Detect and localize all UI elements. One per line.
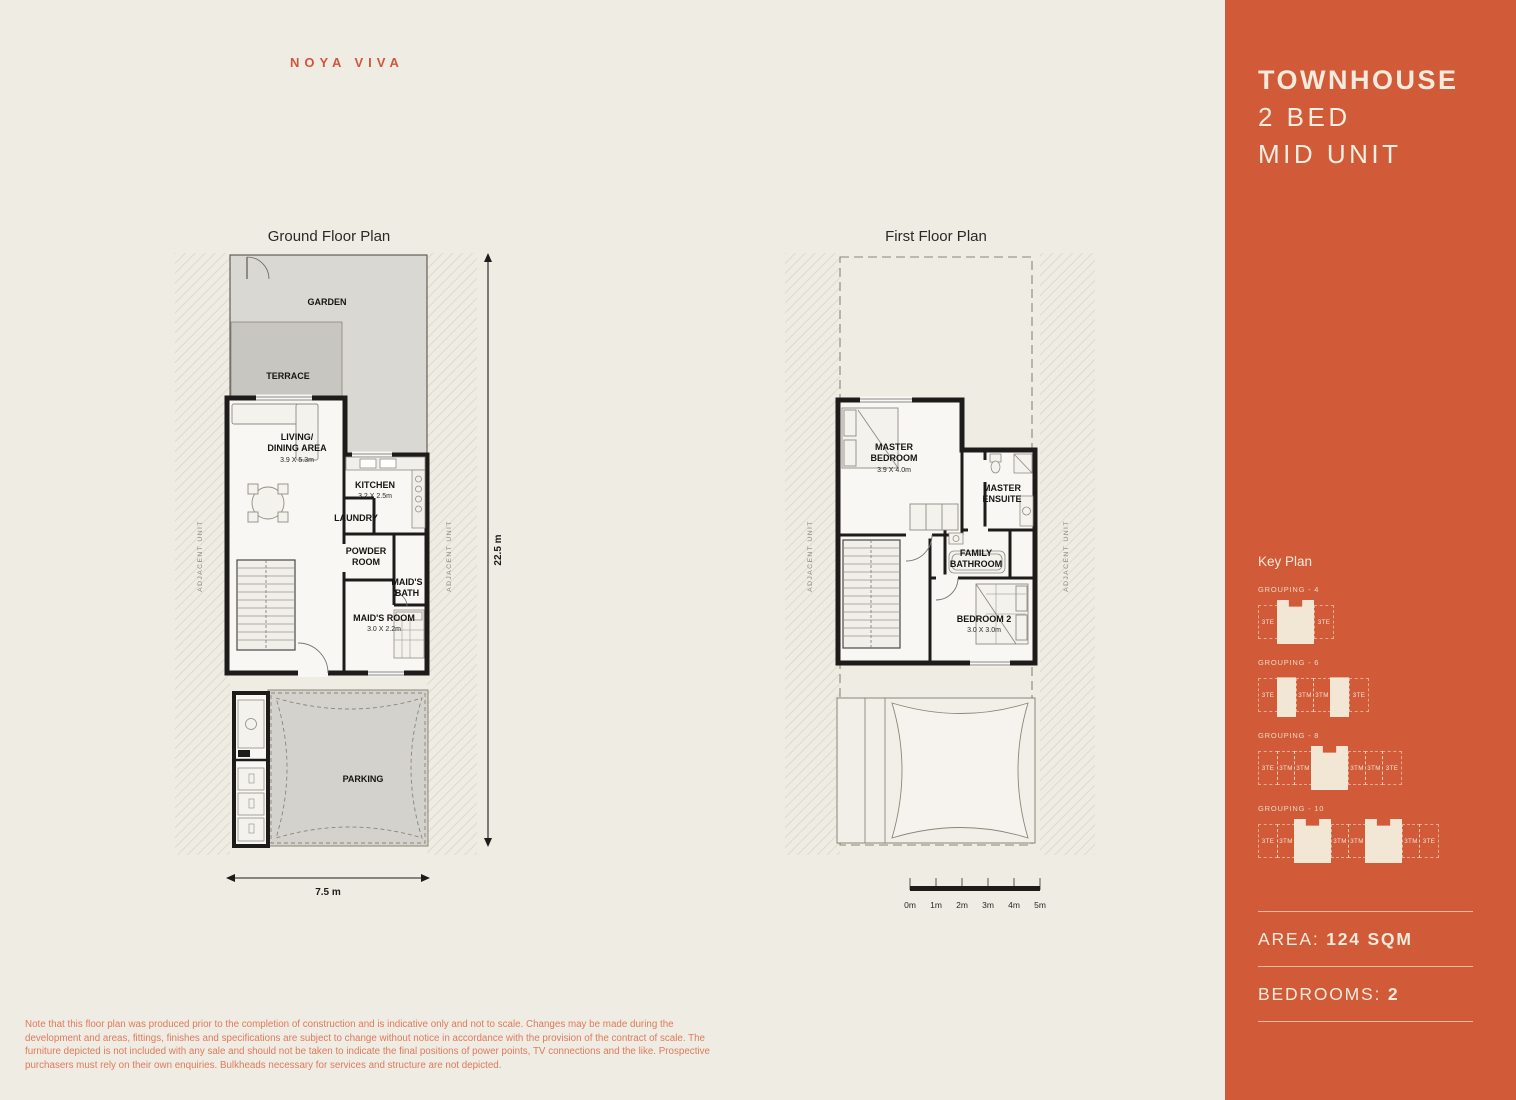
- bedrooms-row: BEDROOMS: 2: [1258, 967, 1473, 1021]
- brochure-page: NOYA VIVA Ground Floor Plan First Floor …: [0, 0, 1516, 1100]
- unit-cell: 3TM: [1296, 678, 1314, 712]
- svg-text:BATHROOM: BATHROOM: [950, 559, 1002, 569]
- svg-text:3.0 X 2.2m: 3.0 X 2.2m: [367, 626, 401, 633]
- highlighted-unit: [1365, 819, 1402, 863]
- spec-summary: AREA: 124 SQM BEDROOMS: 2: [1258, 911, 1473, 1022]
- svg-text:MAID'S: MAID'S: [391, 577, 422, 587]
- svg-text:3.9 X 5.3m: 3.9 X 5.3m: [280, 457, 314, 464]
- svg-text:ROOM: ROOM: [352, 557, 380, 567]
- ground-floor-title: Ground Floor Plan: [144, 228, 514, 245]
- grouping-label: GROUPING - 4: [1258, 585, 1498, 594]
- unit-cell: 3TM: [1331, 824, 1349, 858]
- unit-cell: 3TM: [1294, 751, 1312, 785]
- svg-text:ENSUITE: ENSUITE: [982, 494, 1021, 504]
- grouping-diagram: 3TE 3TM 3TM 3TM 3TM 3TE: [1258, 745, 1498, 791]
- svg-text:MASTER: MASTER: [875, 442, 914, 452]
- svg-text:PARKING: PARKING: [343, 774, 384, 784]
- svg-text:LAUNDRY: LAUNDRY: [334, 513, 378, 523]
- key-plan: Key Plan GROUPING - 4 3TE 3TE GROUPING -…: [1258, 554, 1498, 877]
- scale-tick: 3m: [982, 900, 994, 910]
- keyplan-grouping-8: GROUPING - 8 3TE 3TM 3TM 3TM 3TM 3TE: [1258, 731, 1498, 791]
- carport-canopy: [837, 698, 1035, 843]
- svg-text:FAMILY: FAMILY: [960, 548, 992, 558]
- svg-text:7.5 m: 7.5 m: [315, 887, 341, 898]
- unit-cell: 3TM: [1277, 751, 1295, 785]
- bedrooms-label: BEDROOMS:: [1258, 984, 1381, 1004]
- keyplan-grouping-4: GROUPING - 4 3TE 3TE: [1258, 585, 1498, 645]
- svg-text:MASTER: MASTER: [983, 483, 1022, 493]
- unit-cell: 3TM: [1348, 824, 1366, 858]
- sidebar: TOWNHOUSE 2 BED MID UNIT Key Plan GROUPI…: [1225, 0, 1516, 1100]
- grouping-label: GROUPING - 10: [1258, 804, 1498, 813]
- svg-text:POWDER: POWDER: [346, 546, 387, 556]
- unit-cell: 3TM: [1277, 824, 1295, 858]
- first-stairs: [843, 540, 900, 648]
- adjacent-unit-label-left: ADJACENT UNIT: [807, 520, 814, 592]
- adjacent-unit-label-right: ADJACENT UNIT: [446, 520, 453, 592]
- brand-logo: NOYA VIVA: [290, 55, 404, 70]
- highlighted-unit: [1330, 673, 1349, 717]
- svg-text:3.9 X 4.0m: 3.9 X 4.0m: [877, 467, 911, 474]
- scale-tick: 0m: [904, 900, 916, 910]
- svg-text:MAID'S ROOM: MAID'S ROOM: [353, 613, 415, 623]
- svg-text:3.0 X 3.0m: 3.0 X 3.0m: [967, 627, 1001, 634]
- grouping-diagram: 3TE 3TM 3TM 3TE: [1258, 672, 1498, 718]
- bedrooms-value: 2: [1388, 984, 1400, 1004]
- unit-cell: 3TE: [1258, 678, 1278, 712]
- scale-tick: 4m: [1008, 900, 1020, 910]
- unit-title-line1: TOWNHOUSE: [1258, 62, 1459, 99]
- svg-text:TERRACE: TERRACE: [266, 371, 310, 381]
- grouping-diagram: 3TE 3TE: [1258, 599, 1498, 645]
- unit-title: TOWNHOUSE 2 BED MID UNIT: [1258, 62, 1459, 173]
- unit-cell: 3TE: [1349, 678, 1369, 712]
- area-value: 124 SQM: [1326, 929, 1413, 949]
- grouping-label: GROUPING - 6: [1258, 658, 1498, 667]
- unit-cell: 3TM: [1402, 824, 1420, 858]
- adjacent-unit-label-right: ADJACENT UNIT: [1063, 520, 1070, 592]
- unit-title-line3: MID UNIT: [1258, 136, 1459, 173]
- first-floor-title: First Floor Plan: [751, 228, 1121, 245]
- divider: [1258, 1021, 1473, 1022]
- highlighted-unit: [1277, 673, 1296, 717]
- scale-bar: 0m 1m 2m 3m 4m 5m: [895, 868, 1055, 916]
- unit-title-line2: 2 BED: [1258, 99, 1459, 136]
- area-row: AREA: 124 SQM: [1258, 912, 1473, 966]
- svg-text:22.5 m: 22.5 m: [493, 534, 504, 565]
- dimension-vertical: 22.5 m: [484, 253, 504, 847]
- disclaimer-note: Note that this floor plan was produced p…: [25, 1018, 717, 1073]
- unit-cell: 3TE: [1314, 605, 1334, 639]
- scale-tick: 2m: [956, 900, 968, 910]
- svg-text:BEDROOM: BEDROOM: [871, 453, 918, 463]
- svg-text:KITCHEN: KITCHEN: [355, 480, 395, 490]
- unit-cell: 3TE: [1382, 751, 1402, 785]
- scale-tick: 5m: [1034, 900, 1046, 910]
- grouping-label: GROUPING - 8: [1258, 731, 1498, 740]
- utility-closet: [234, 693, 268, 846]
- svg-text:BEDROOM 2: BEDROOM 2: [957, 614, 1012, 624]
- unit-cell: 3TM: [1365, 751, 1383, 785]
- grouping-diagram: 3TE 3TM 3TM 3TM 3TM 3TE: [1258, 818, 1498, 864]
- adjacent-unit-label-left: ADJACENT UNIT: [197, 520, 204, 592]
- unit-cell: 3TE: [1419, 824, 1439, 858]
- key-plan-title: Key Plan: [1258, 554, 1498, 569]
- area-label: AREA:: [1258, 929, 1320, 949]
- entry-opening: [298, 668, 328, 677]
- terrace-area: [231, 322, 342, 398]
- svg-text:DINING AREA: DINING AREA: [267, 443, 327, 453]
- highlighted-unit: [1277, 600, 1314, 644]
- first-floor-plan: ADJACENT UNIT ADJACENT UNIT: [780, 248, 1150, 908]
- unit-cell: 3TM: [1348, 751, 1366, 785]
- unit-cell: 3TM: [1313, 678, 1331, 712]
- keyplan-grouping-10: GROUPING - 10 3TE 3TM 3TM 3TM 3TM 3TE: [1258, 804, 1498, 864]
- parking-area: [268, 690, 428, 846]
- ground-floor-plan: ADJACENT UNIT ADJACENT UNIT: [170, 248, 540, 908]
- unit-cell: 3TE: [1258, 824, 1278, 858]
- svg-text:BATH: BATH: [395, 588, 419, 598]
- svg-text:3.2 X 2.5m: 3.2 X 2.5m: [358, 493, 392, 500]
- svg-text:GARDEN: GARDEN: [307, 297, 346, 307]
- ground-stairs: [237, 560, 295, 650]
- highlighted-unit: [1311, 746, 1348, 790]
- keyplan-grouping-6: GROUPING - 6 3TE 3TM 3TM 3TE: [1258, 658, 1498, 718]
- svg-text:LIVING/: LIVING/: [281, 432, 314, 442]
- unit-cell: 3TE: [1258, 751, 1278, 785]
- unit-cell: 3TE: [1258, 605, 1278, 639]
- highlighted-unit: [1294, 819, 1331, 863]
- dimension-horizontal: 7.5 m: [226, 874, 430, 898]
- scale-tick: 1m: [930, 900, 942, 910]
